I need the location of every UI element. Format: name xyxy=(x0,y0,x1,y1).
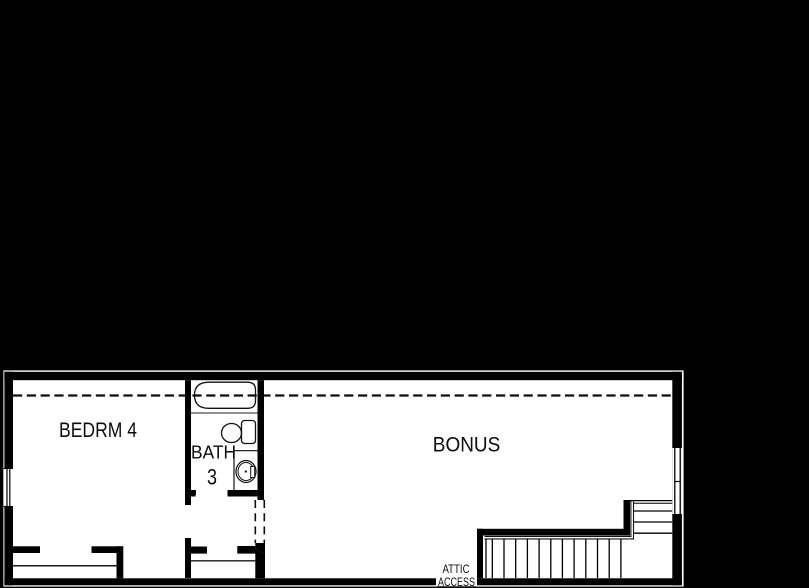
svg-text:BONUS: BONUS xyxy=(433,433,501,457)
svg-text:BEDRM 4: BEDRM 4 xyxy=(59,418,137,442)
svg-text:ACCESS: ACCESS xyxy=(438,575,475,588)
svg-text:3: 3 xyxy=(207,465,217,490)
svg-text:ATTIC: ATTIC xyxy=(443,562,470,576)
svg-text:BATH: BATH xyxy=(191,443,236,463)
